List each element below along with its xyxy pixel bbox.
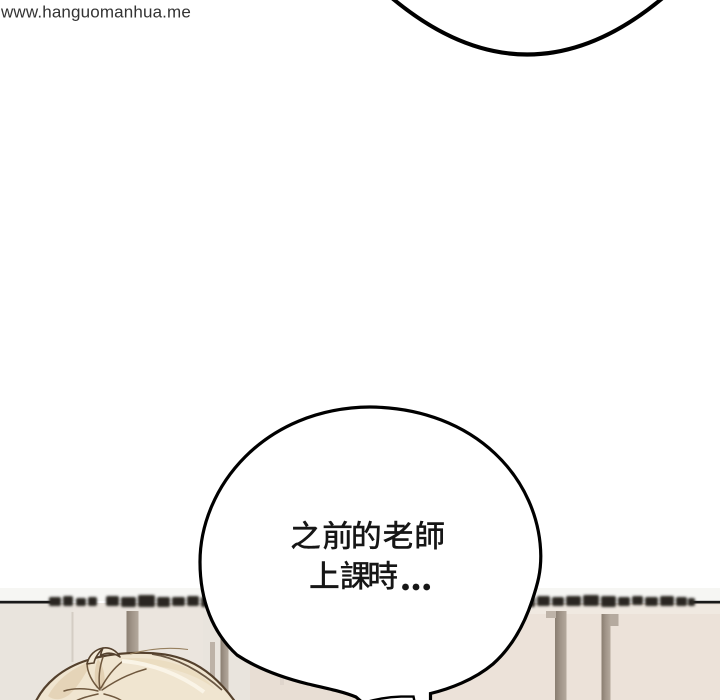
svg-text:www.hanguomanhua.me: www.hanguomanhua.me xyxy=(0,3,191,22)
